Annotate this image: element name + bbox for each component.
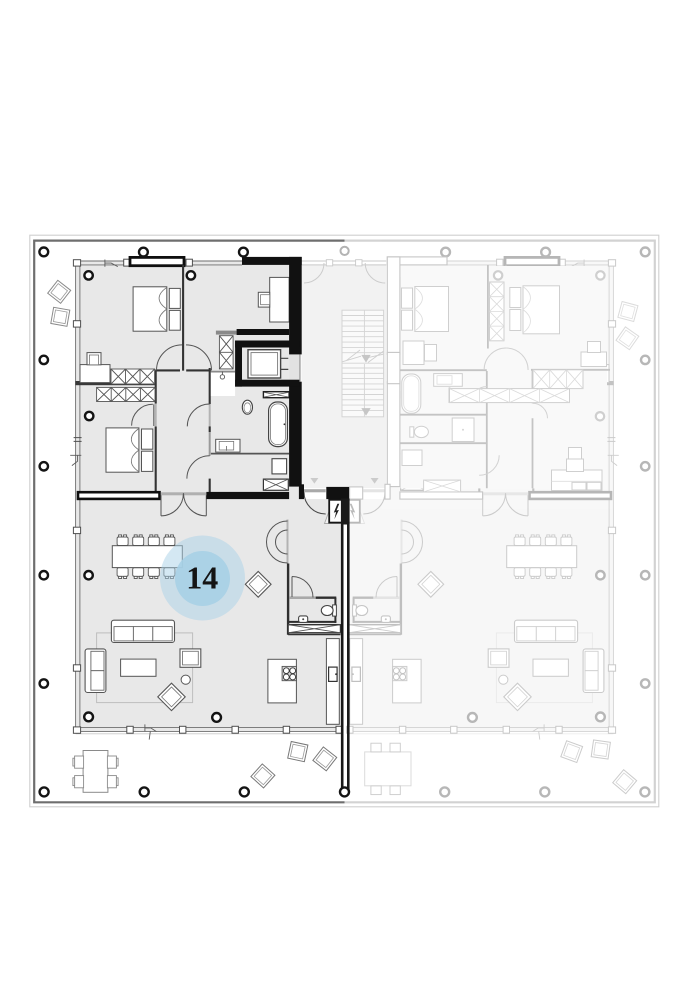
svg-text:14: 14 bbox=[186, 559, 218, 595]
